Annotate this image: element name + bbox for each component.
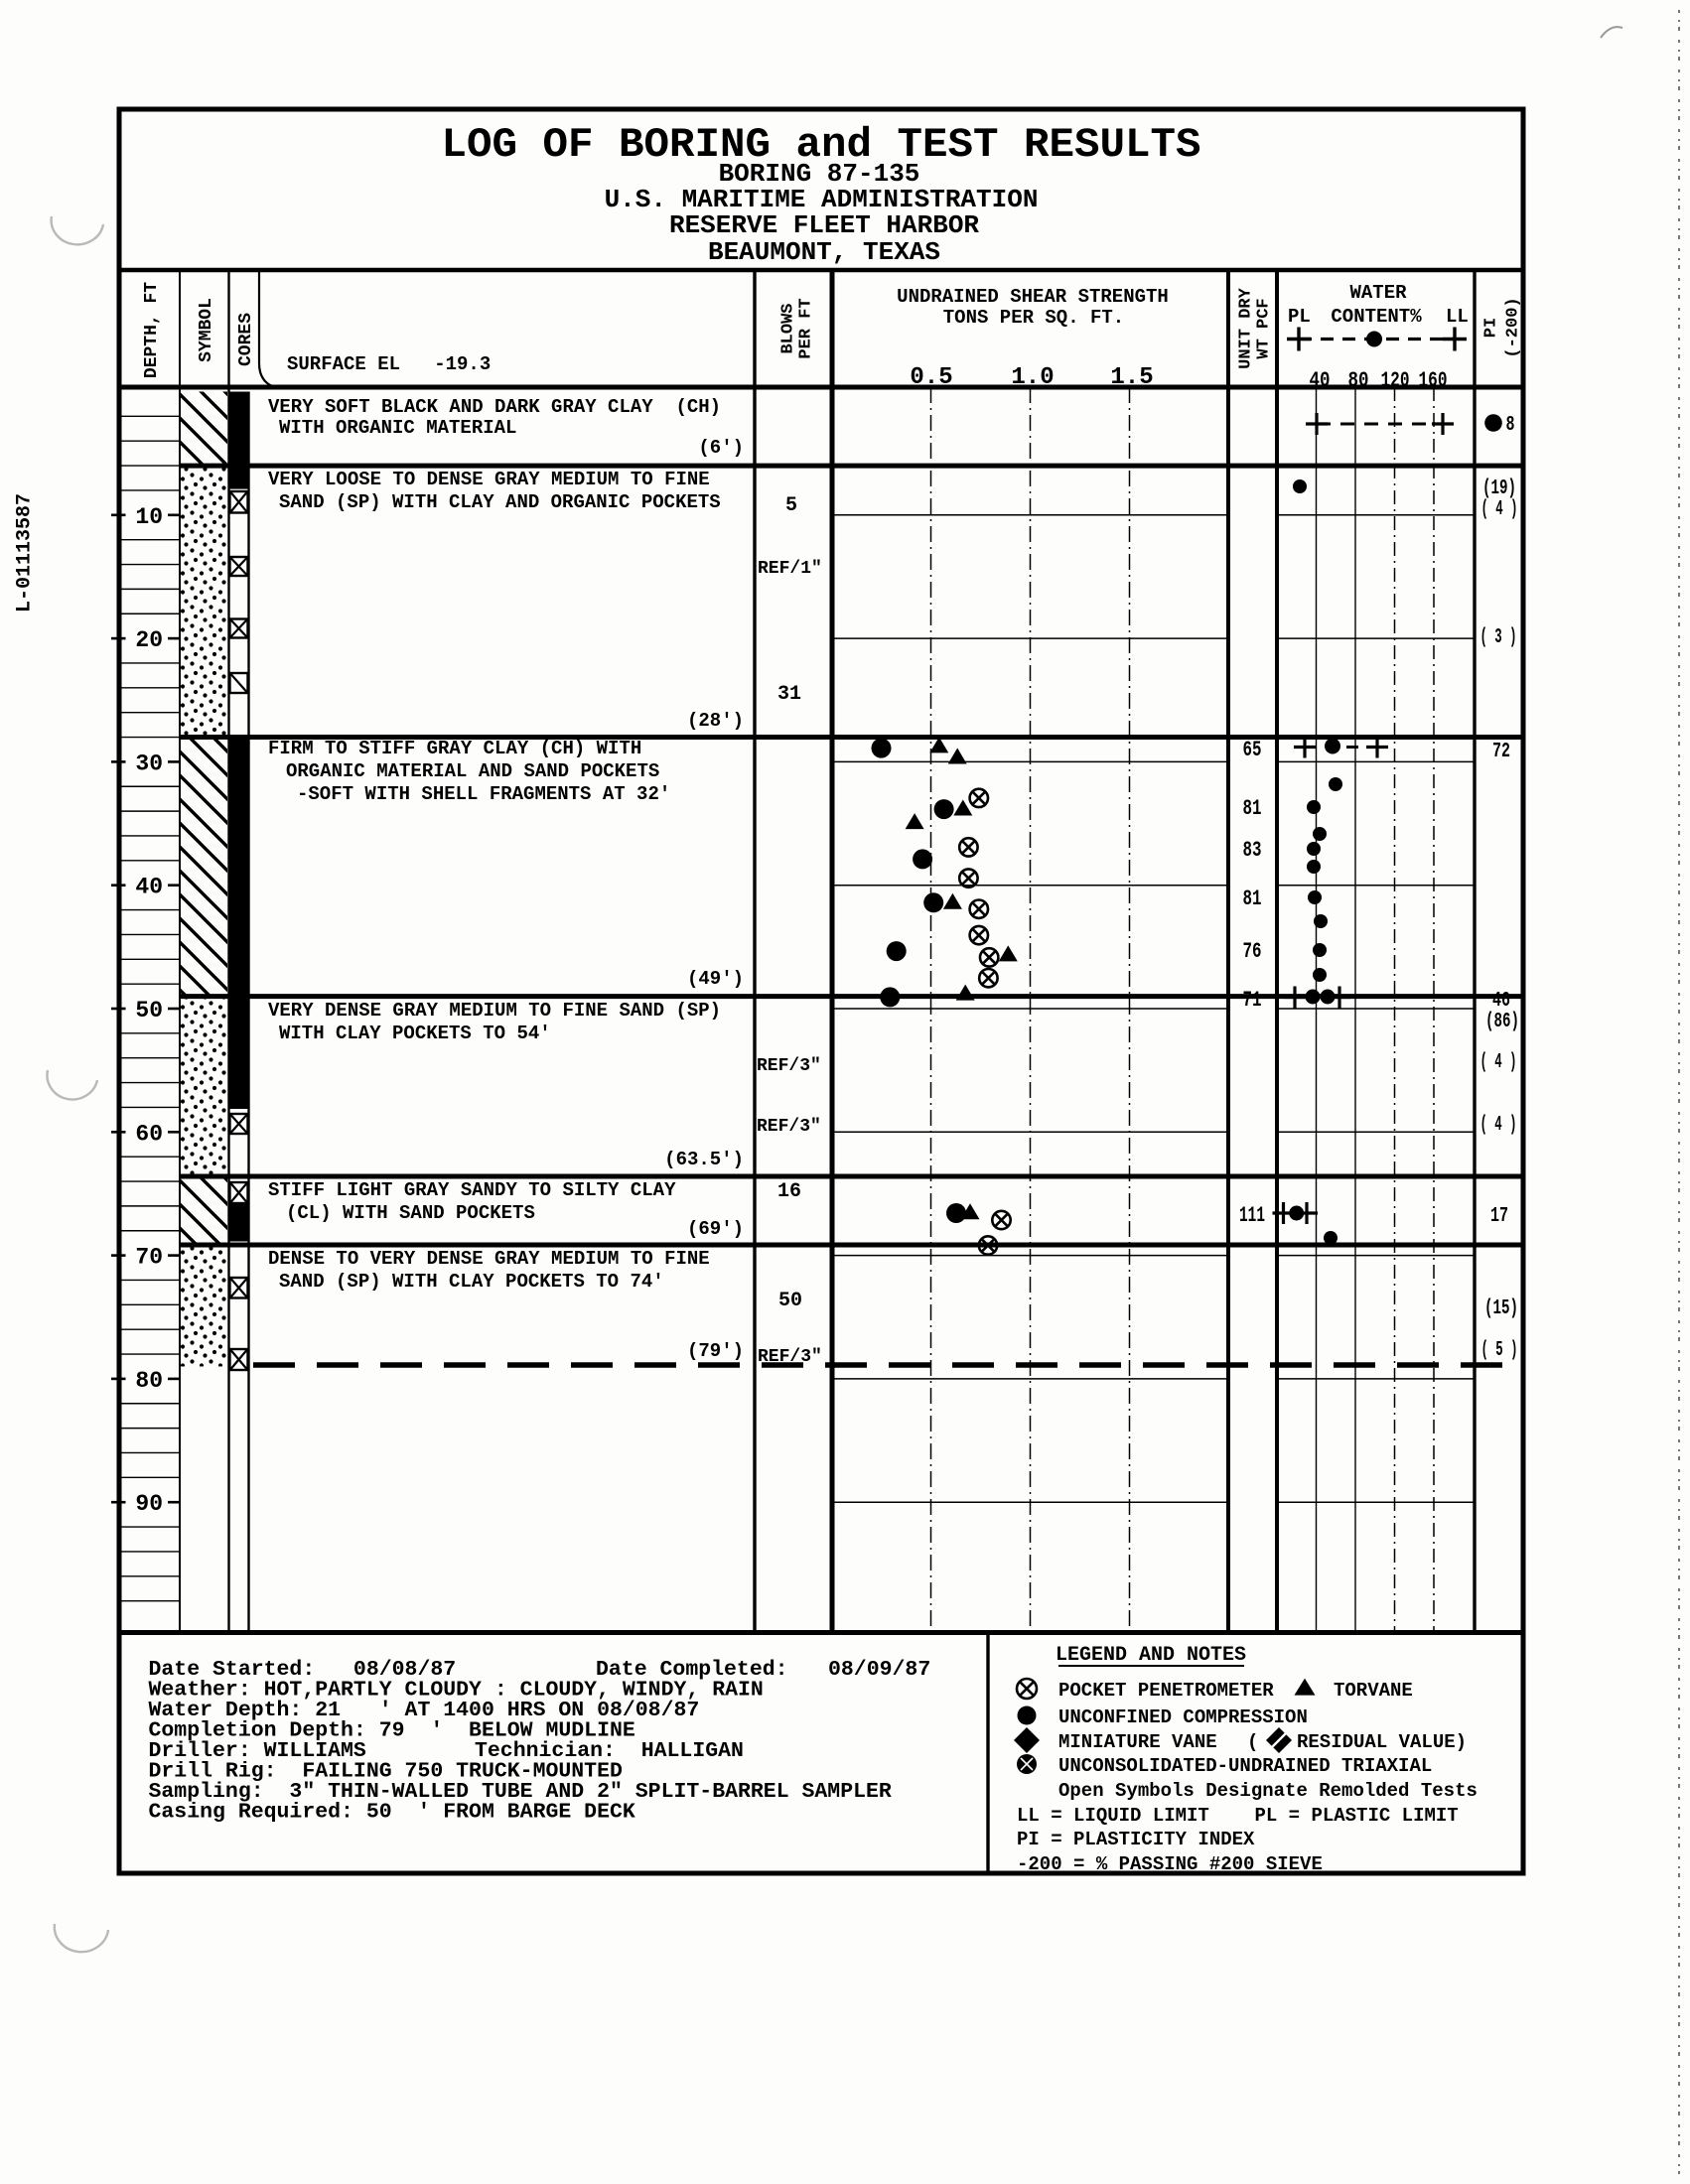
svg-text:UNDRAINED SHEAR STRENGTH: UNDRAINED SHEAR STRENGTH <box>897 286 1169 308</box>
svg-text:SAND (SP) WITH CLAY POCKETS TO: SAND (SP) WITH CLAY POCKETS TO 74' <box>279 1271 664 1293</box>
svg-text:CORES: CORES <box>236 313 256 366</box>
svg-text:UNCONFINED COMPRESSION: UNCONFINED COMPRESSION <box>1058 1706 1308 1728</box>
svg-text:TONS PER SQ. FT.: TONS PER SQ. FT. <box>943 307 1124 329</box>
svg-text:MINIATURE VANE: MINIATURE VANE <box>1058 1731 1217 1753</box>
svg-text:(79'): (79') <box>687 1340 744 1362</box>
svg-text:UNCONSOLIDATED-UNDRAINED TRIAX: UNCONSOLIDATED-UNDRAINED TRIAXIAL <box>1058 1755 1432 1777</box>
svg-text:71: 71 <box>1243 988 1262 1013</box>
svg-text:( 4 ): ( 4 ) <box>1481 498 1518 521</box>
svg-text:80: 80 <box>135 1368 163 1394</box>
svg-text:WT PCF: WT PCF <box>1254 298 1273 358</box>
svg-text:(-200): (-200) <box>1503 297 1522 357</box>
svg-text:L-01113587: L-01113587 <box>13 493 36 613</box>
svg-text:81: 81 <box>1243 796 1262 821</box>
svg-text:1.0: 1.0 <box>1011 364 1054 391</box>
svg-text:Open Symbols Designate Remolde: Open Symbols Designate Remolded Tests <box>1058 1780 1478 1802</box>
svg-text:-SOFT WITH SHELL FRAGMENTS AT: -SOFT WITH SHELL FRAGMENTS AT 32' <box>297 783 670 805</box>
svg-text:ORGANIC MATERIAL AND SAND POCK: ORGANIC MATERIAL AND SAND POCKETS <box>286 760 659 782</box>
svg-text:Casing Required: 50 ' FROM BA: Casing Required: 50 ' FROM BARGE DECK <box>149 1801 635 1825</box>
svg-text:REF/3": REF/3" <box>758 1347 822 1367</box>
svg-text:8: 8 <box>1506 414 1515 437</box>
svg-text:( 4 ): ( 4 ) <box>1480 1051 1517 1074</box>
svg-text:120: 120 <box>1381 368 1410 393</box>
svg-text:PI: PI <box>1481 318 1500 338</box>
svg-text:40: 40 <box>135 875 163 900</box>
svg-text:(28'): (28') <box>687 710 744 732</box>
svg-text:(63.5'): (63.5') <box>664 1149 744 1170</box>
svg-text:65: 65 <box>1243 738 1262 762</box>
svg-text:SAND (SP) WITH CLAY AND ORGANI: SAND (SP) WITH CLAY AND ORGANIC POCKETS <box>279 491 721 513</box>
svg-text:70: 70 <box>135 1245 163 1271</box>
svg-text:( 3 ): ( 3 ) <box>1480 626 1517 649</box>
svg-text:72: 72 <box>1492 741 1510 763</box>
svg-text:SURFACE EL -19.3: SURFACE EL -19.3 <box>287 353 491 375</box>
svg-text:20: 20 <box>135 627 163 653</box>
svg-text:(69'): (69') <box>687 1218 744 1240</box>
svg-text:5: 5 <box>785 494 797 517</box>
svg-text:REF/3": REF/3" <box>757 1056 821 1076</box>
svg-text:FIRM TO STIFF GRAY CLAY (CH) W: FIRM TO STIFF GRAY CLAY (CH) WITH <box>268 738 641 759</box>
svg-text:POCKET PENETROMETER: POCKET PENETROMETER <box>1058 1680 1274 1702</box>
svg-text:111: 111 <box>1239 1203 1265 1228</box>
svg-text:( 4 ): ( 4 ) <box>1480 1114 1517 1137</box>
svg-text:10: 10 <box>135 504 163 530</box>
svg-text:LL: LL <box>1446 306 1469 328</box>
svg-text:SYMBOL: SYMBOL <box>197 298 216 362</box>
svg-text:46: 46 <box>1492 990 1510 1013</box>
svg-text:BLOWS: BLOWS <box>778 303 797 353</box>
svg-text:UNIT DRY: UNIT DRY <box>1236 287 1255 368</box>
svg-text:DEPTH, FT: DEPTH, FT <box>142 282 162 378</box>
svg-text:WITH CLAY POCKETS TO 54': WITH CLAY POCKETS TO 54' <box>279 1023 551 1044</box>
svg-text:(86): (86) <box>1485 1011 1519 1033</box>
svg-text:RESERVE FLEET HARBOR: RESERVE FLEET HARBOR <box>669 210 979 240</box>
svg-text:30: 30 <box>135 751 163 776</box>
svg-text:REF/3": REF/3" <box>757 1117 821 1137</box>
svg-text:STIFF LIGHT GRAY SANDY TO SILT: STIFF LIGHT GRAY SANDY TO SILTY CLAY <box>268 1179 676 1201</box>
svg-text:90: 90 <box>135 1491 163 1517</box>
svg-text:60: 60 <box>135 1121 163 1147</box>
svg-text:50: 50 <box>135 998 163 1024</box>
svg-text:(: ( <box>1247 1731 1258 1753</box>
svg-text:( 5 ): ( 5 ) <box>1481 1339 1518 1362</box>
svg-text:76: 76 <box>1243 939 1262 964</box>
svg-text:(CL) WITH SAND POCKETS: (CL) WITH SAND POCKETS <box>286 1202 535 1224</box>
svg-text:0.5: 0.5 <box>910 364 952 391</box>
svg-text:80: 80 <box>1348 368 1369 393</box>
svg-text:DENSE TO VERY DENSE GRAY MEDIU: DENSE TO VERY DENSE GRAY MEDIUM TO FINE <box>268 1248 710 1270</box>
svg-text:(6'): (6') <box>698 437 744 459</box>
svg-text:VERY SOFT BLACK AND DARK GRAY: VERY SOFT BLACK AND DARK GRAY CLAY (CH) <box>268 396 721 418</box>
svg-text:16: 16 <box>777 1180 801 1203</box>
svg-text:08/09/87: 08/09/87 <box>828 1658 930 1682</box>
svg-text:17: 17 <box>1490 1205 1508 1228</box>
svg-text:50: 50 <box>778 1290 802 1312</box>
svg-text:160: 160 <box>1419 368 1448 393</box>
svg-text:RESIDUAL VALUE): RESIDUAL VALUE) <box>1297 1731 1467 1753</box>
svg-text:PL: PL <box>1288 306 1311 328</box>
svg-text:40: 40 <box>1310 368 1331 393</box>
svg-text:PI = PLASTICITY INDEX: PI = PLASTICITY INDEX <box>1017 1829 1255 1850</box>
svg-text:TORVANE: TORVANE <box>1334 1680 1413 1702</box>
svg-text:(19): (19) <box>1482 478 1516 500</box>
svg-text:LEGEND AND NOTES: LEGEND AND NOTES <box>1056 1644 1246 1667</box>
svg-text:PER FT: PER FT <box>796 298 815 358</box>
svg-text:VERY DENSE GRAY MEDIUM TO FINE: VERY DENSE GRAY MEDIUM TO FINE SAND (SP) <box>268 1000 721 1022</box>
svg-text:(15): (15) <box>1484 1297 1518 1320</box>
svg-text:BEAUMONT, TEXAS: BEAUMONT, TEXAS <box>708 237 940 267</box>
svg-text:-200 = % PASSING #200 SIEVE: -200 = % PASSING #200 SIEVE <box>1017 1853 1323 1875</box>
svg-text:31: 31 <box>777 683 801 706</box>
svg-text:LL = LIQUID LIMIT PL = PLAS: LL = LIQUID LIMIT PL = PLASTIC LIMIT <box>1017 1805 1459 1827</box>
svg-text:VERY LOOSE TO DENSE GRAY MEDIU: VERY LOOSE TO DENSE GRAY MEDIUM TO FINE <box>268 469 710 490</box>
svg-text:83: 83 <box>1243 838 1262 863</box>
svg-text:WITH ORGANIC MATERIAL: WITH ORGANIC MATERIAL <box>279 417 516 439</box>
svg-text:(49'): (49') <box>687 968 744 990</box>
svg-text:81: 81 <box>1243 887 1262 911</box>
svg-text:WATER: WATER <box>1349 282 1407 304</box>
svg-text:CONTENT%: CONTENT% <box>1331 306 1422 328</box>
svg-text:REF/1": REF/1" <box>758 559 822 579</box>
svg-text:1.5: 1.5 <box>1110 364 1153 391</box>
